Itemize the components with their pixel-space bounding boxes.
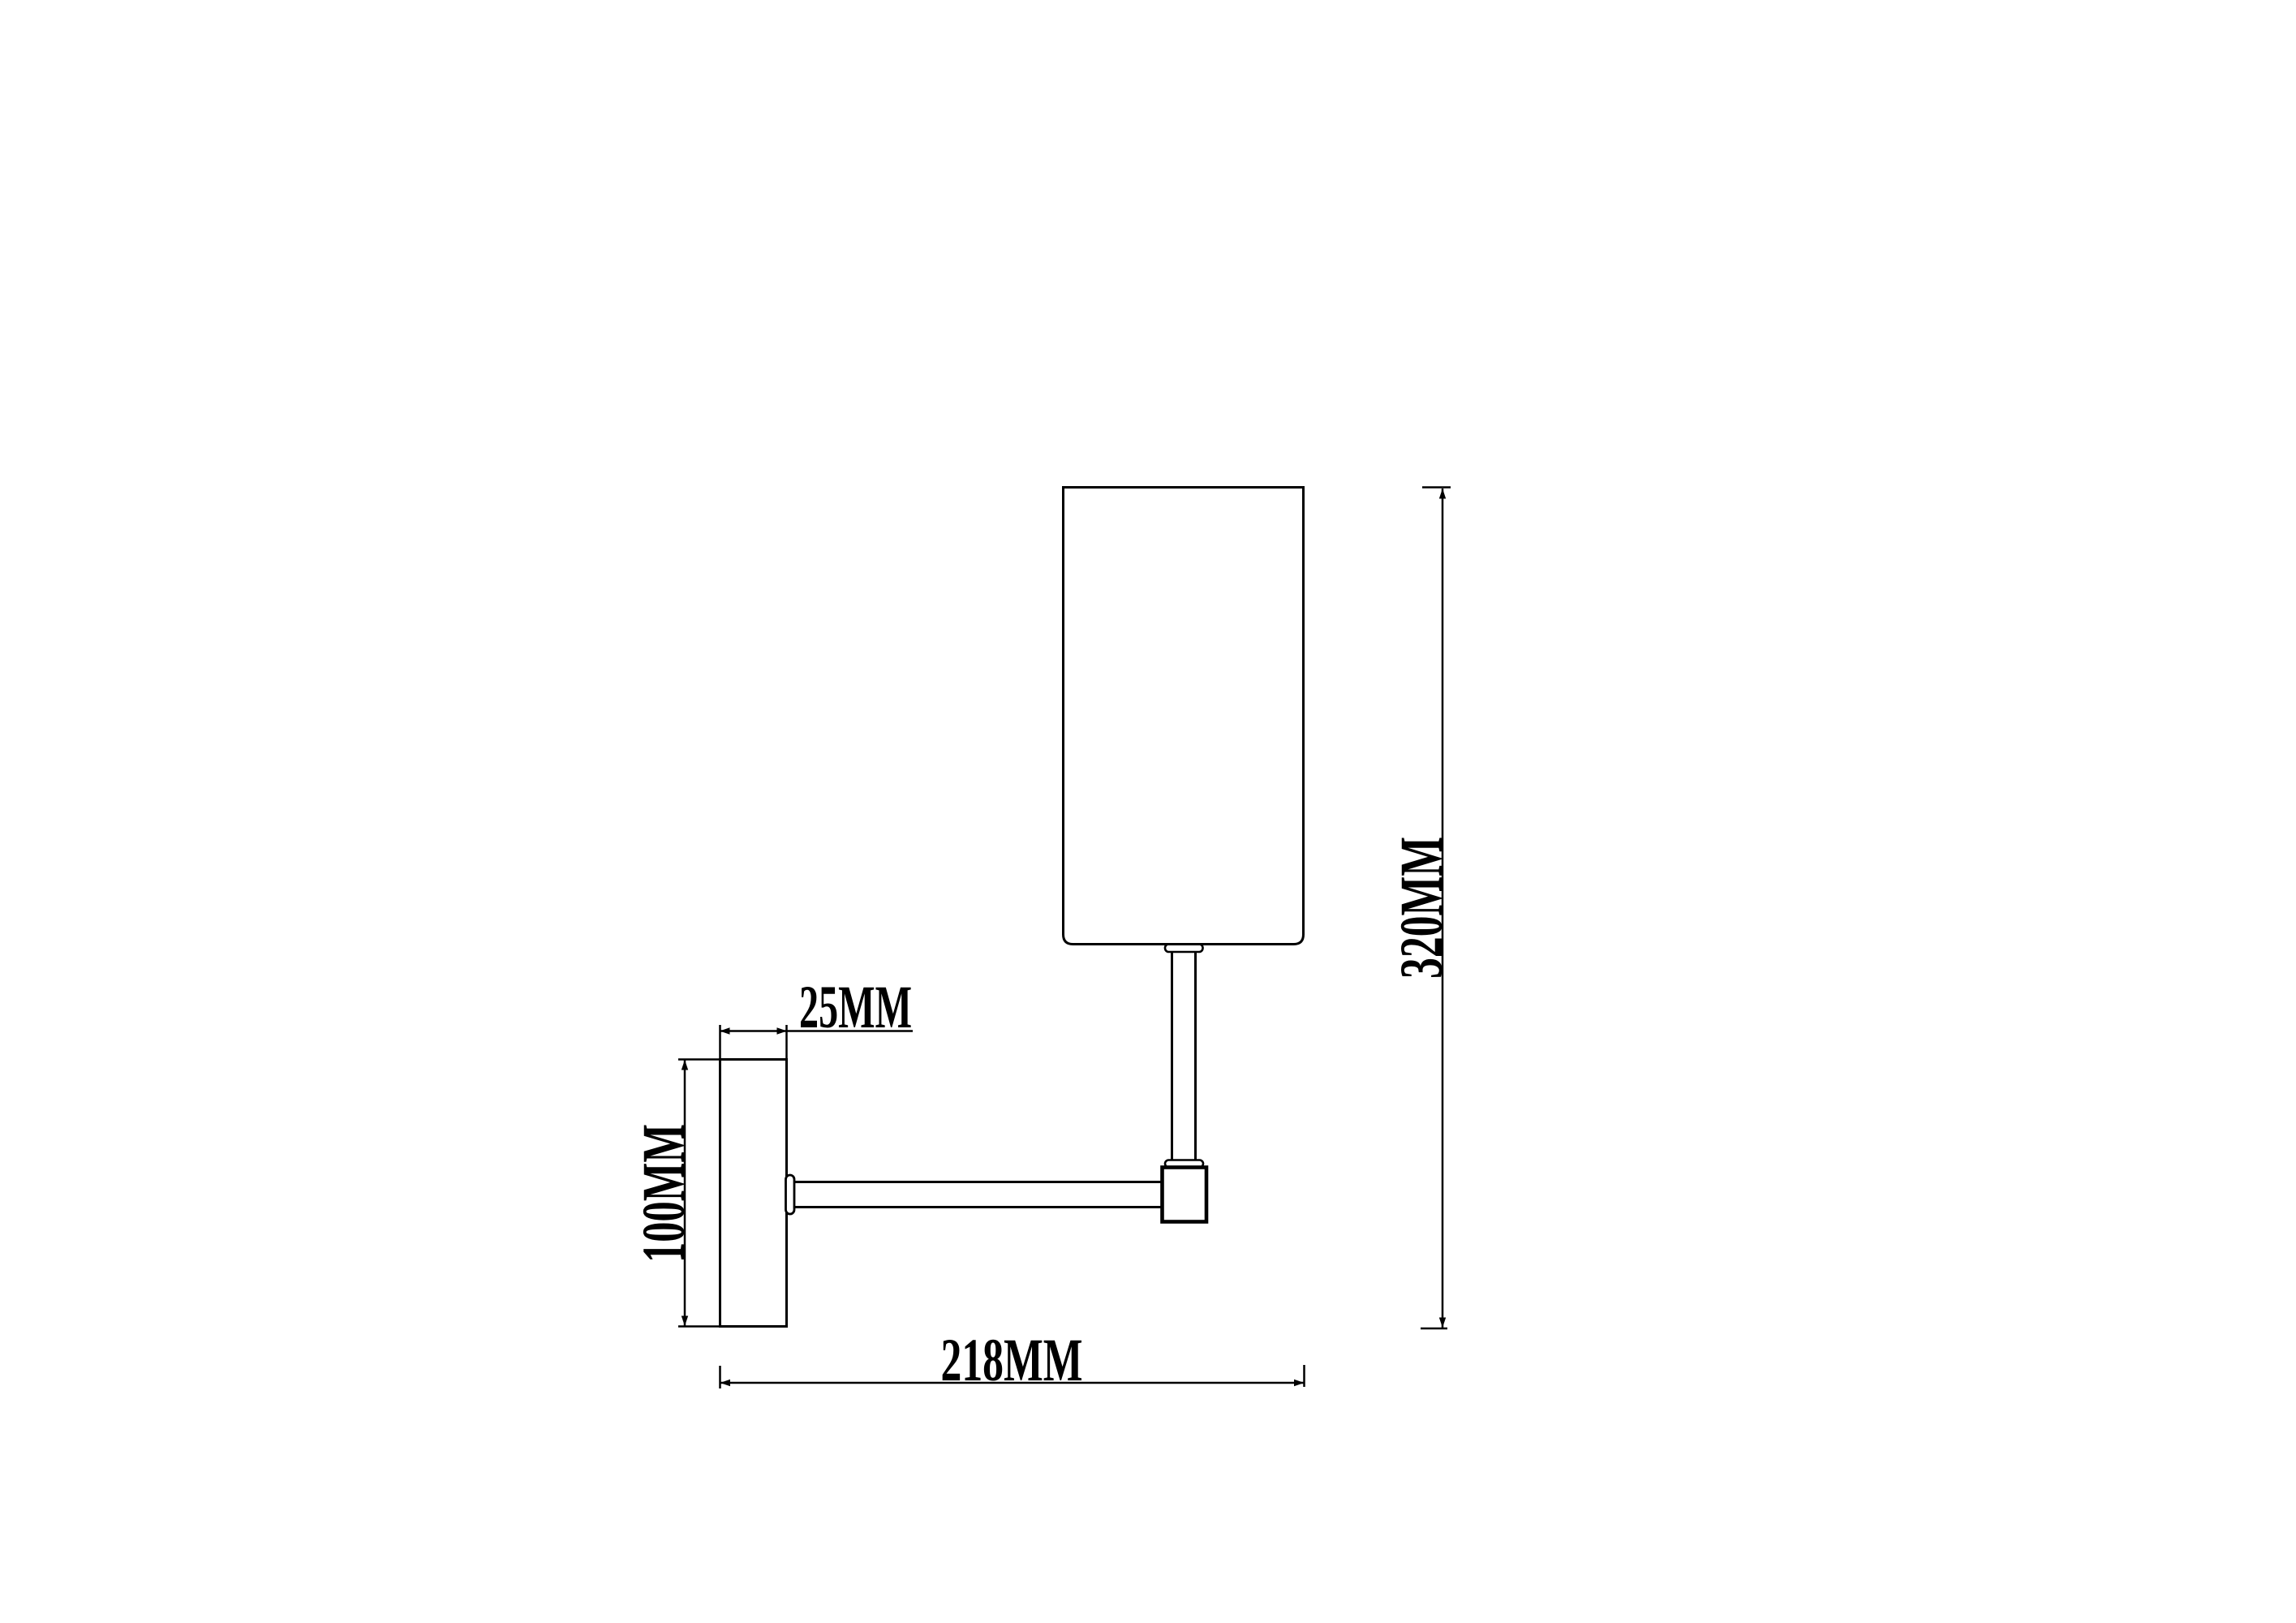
svg-text:218MM: 218MM bbox=[941, 1327, 1083, 1394]
svg-text:100MM: 100MM bbox=[630, 1124, 698, 1263]
svg-text:25MM: 25MM bbox=[799, 974, 912, 1041]
svg-text:320MM: 320MM bbox=[1388, 837, 1455, 979]
